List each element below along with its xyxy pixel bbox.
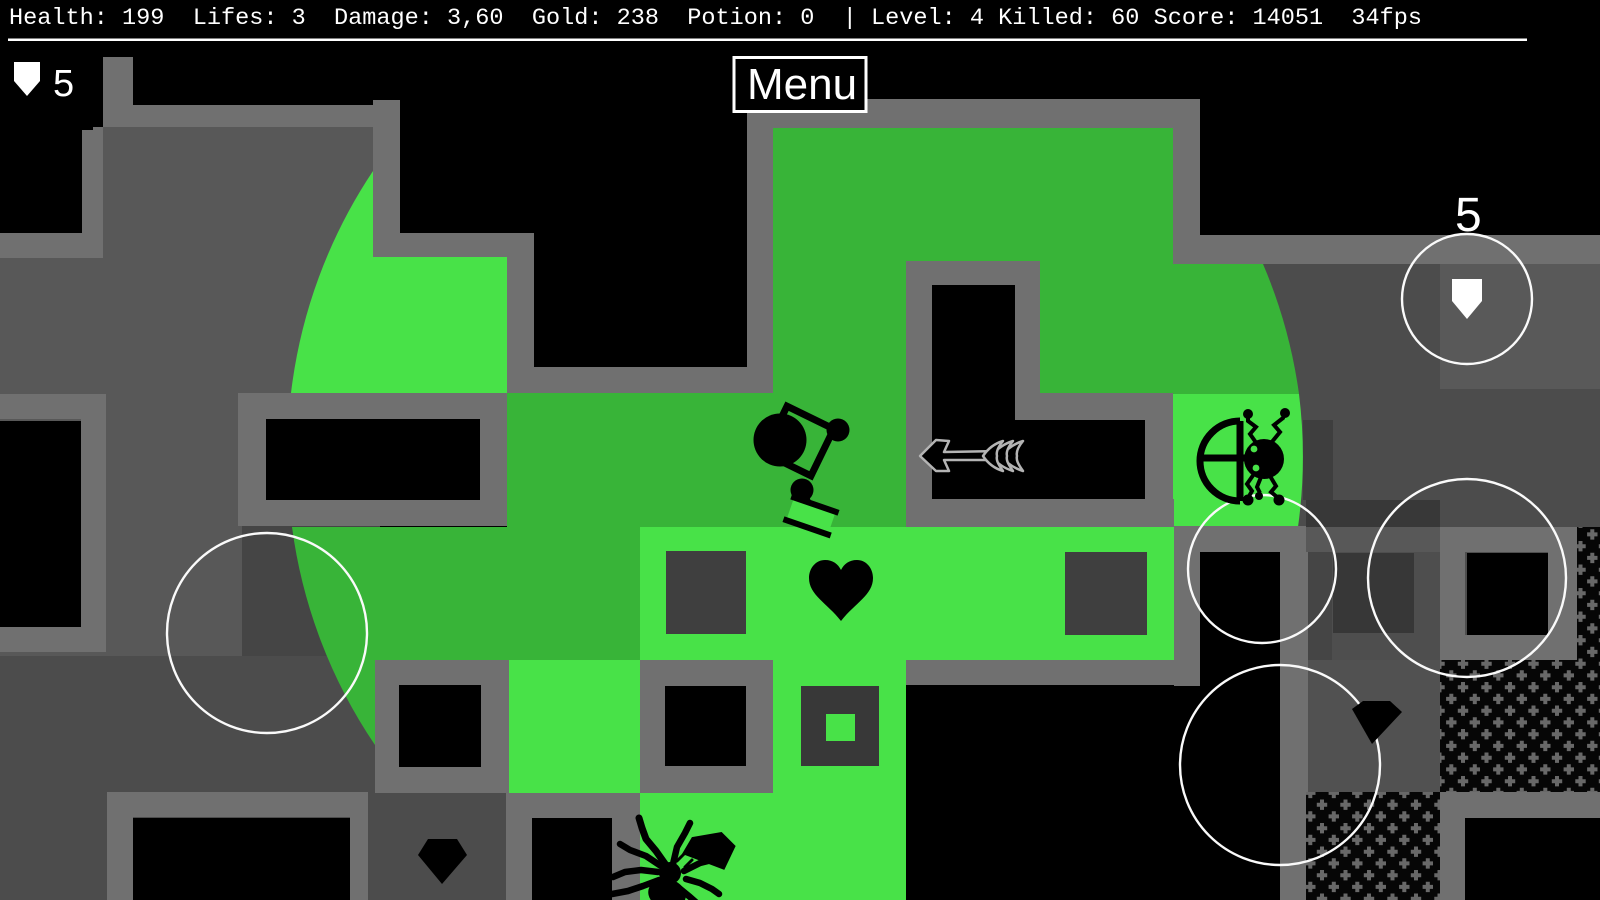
svg-text:Health: 199 Lifes: 3 Damage:: Health: 199 Lifes: 3 Damage: 3,60 Gold: …	[9, 5, 1422, 32]
svg-text:Menu: Menu	[747, 60, 857, 109]
svg-text:5: 5	[53, 63, 74, 105]
